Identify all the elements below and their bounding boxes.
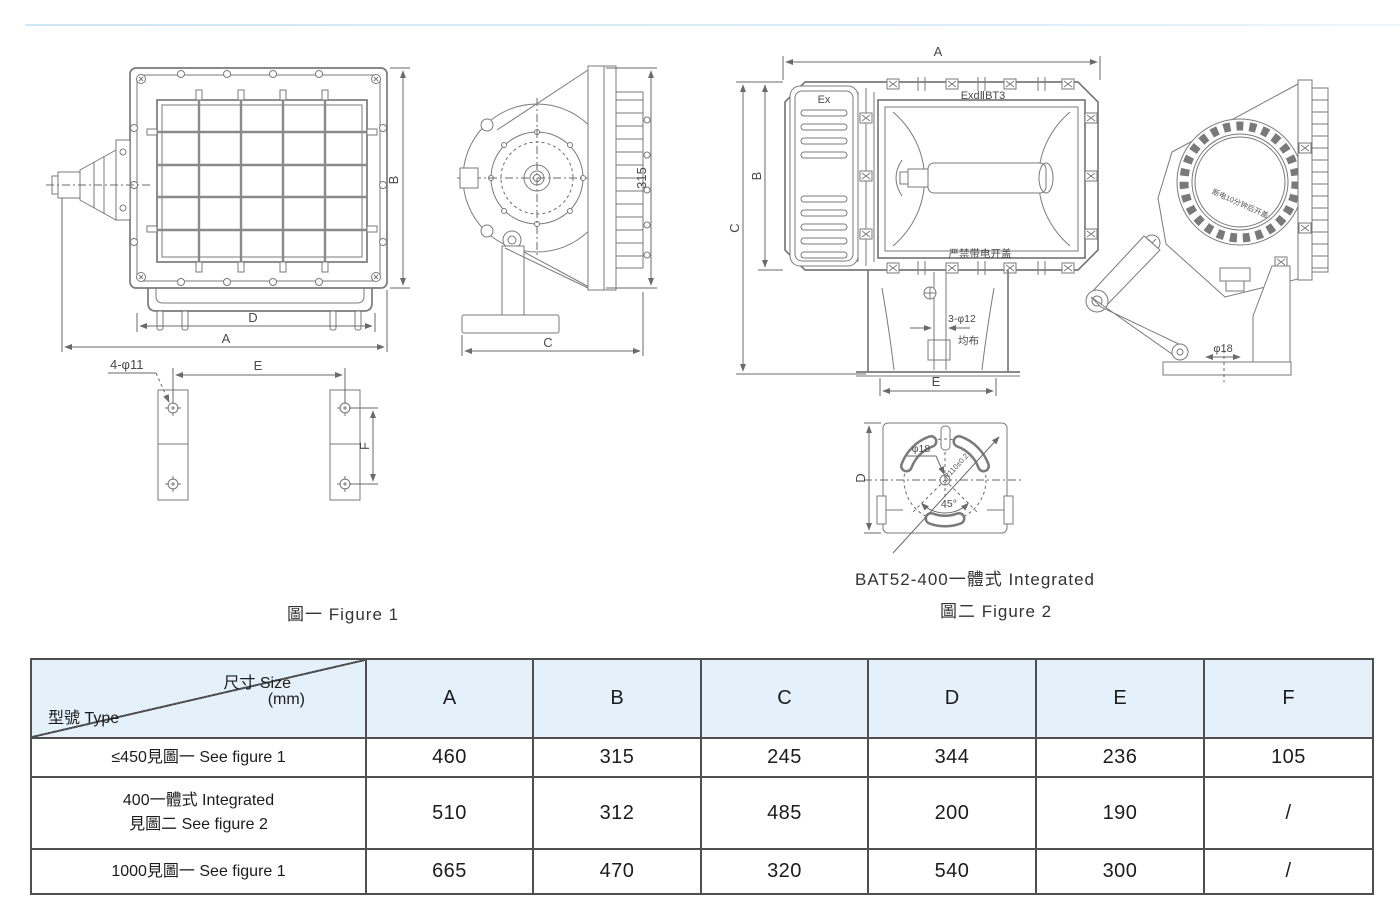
column-header-f: F — [1204, 659, 1373, 738]
fig2-base-dim-d-label: D — [853, 473, 868, 482]
type-cell-line1: 1000見圖一 See figure 1 — [32, 860, 365, 884]
value-cell: 190 — [1036, 777, 1204, 849]
fig1-dim-b-label: B — [386, 176, 401, 185]
figure1-caption: 圖一 Figure 1 — [287, 600, 399, 625]
value-cell: / — [1204, 777, 1373, 849]
value-cell: 470 — [533, 849, 701, 894]
value-cell: 200 — [868, 777, 1036, 849]
fig2-ex-mark: Ex — [818, 94, 831, 106]
fig1-dim-c-label: C — [543, 335, 552, 350]
value-cell: 320 — [701, 849, 868, 894]
value-cell: 665 — [366, 849, 533, 894]
figure1-side-view: 315 C — [457, 66, 657, 356]
value-cell: 245 — [701, 738, 868, 777]
fig2-base-angle-label: 45° — [941, 498, 957, 510]
fig2-warning-text: 严禁带电开盖 — [949, 247, 1012, 260]
fig2-bolt-holes-label: 3-φ12 — [948, 313, 976, 325]
dimension-table: 尺寸 Size (mm) 型號 Type A B C D E F ≤450見圖一… — [30, 658, 1374, 895]
table-header-row: 尺寸 Size (mm) 型號 Type A B C D E F — [31, 659, 1373, 738]
value-cell: 344 — [868, 738, 1036, 777]
figure2-title: BAT52-400一體式 Integrated — [855, 565, 1095, 590]
table-row: ≤450見圖一 See figure 1 460 315 245 344 236… — [31, 738, 1373, 777]
value-cell: 236 — [1036, 738, 1204, 777]
fig1-dim-315-label: 315 — [634, 167, 649, 189]
size-label: 尺寸 Size — [223, 669, 291, 693]
value-cell: 540 — [868, 849, 1036, 894]
type-cell-line2: 見圖二 See figure 2 — [32, 813, 365, 837]
figure1-mounting-bracket-detail: E 4-φ11 F — [108, 357, 378, 500]
column-header-a: A — [366, 659, 533, 738]
value-cell: 105 — [1204, 738, 1373, 777]
column-header-c: C — [701, 659, 868, 738]
fig1-dim-f-label: F — [357, 442, 372, 450]
type-cell: ≤450見圖一 See figure 1 — [31, 738, 366, 777]
column-header-d: D — [868, 659, 1036, 738]
table-row: 400一體式 Integrated 見圖二 See figure 2 510 3… — [31, 777, 1373, 849]
fig2-base-phi18-label: φ18 — [912, 443, 931, 455]
fig1-dim-d-label: D — [248, 310, 257, 325]
value-cell: 300 — [1036, 849, 1204, 894]
technical-drawings: B D A E 4-φ11 F — [0, 0, 1400, 655]
fig2-bolt-holes-note: 均布 — [958, 335, 979, 347]
figure2-side-view: 断电10分钟后开盖 φ18 — [1086, 80, 1328, 382]
fig1-dim-e-label: E — [254, 358, 263, 373]
type-cell: 1000見圖一 See figure 1 — [31, 849, 366, 894]
figure2-front-view: Ex ExdⅡBT3 严禁带电开盖 — [727, 44, 1100, 396]
type-cell-line1: 400一體式 Integrated — [32, 789, 365, 813]
type-label: 型號 Type — [48, 704, 119, 728]
size-unit-label: (mm) — [268, 691, 305, 709]
table-corner-cell: 尺寸 Size (mm) 型號 Type — [31, 659, 366, 738]
type-cell-line1: ≤450見圖一 See figure 1 — [32, 746, 365, 770]
value-cell: 312 — [533, 777, 701, 849]
value-cell: 315 — [533, 738, 701, 777]
column-header-b: B — [533, 659, 701, 738]
figure2-caption: 圖二 Figure 2 — [940, 597, 1052, 622]
figure1-front-view: B D A — [46, 68, 410, 352]
table-row: 1000見圖一 See figure 1 665 470 320 540 300… — [31, 849, 1373, 894]
fig2-dim-e-label: E — [932, 374, 941, 389]
value-cell: 485 — [701, 777, 868, 849]
value-cell: / — [1204, 849, 1373, 894]
fig2-dim-c-label: C — [727, 223, 742, 232]
type-cell: 400一體式 Integrated 見圖二 See figure 2 — [31, 777, 366, 849]
value-cell: 510 — [366, 777, 533, 849]
figure2-base-plate-detail: D φ18 45° R110±0.2 — [853, 423, 1024, 553]
fig2-dim-a-label: A — [934, 44, 943, 59]
value-cell: 460 — [366, 738, 533, 777]
fig1-dim-a-label: A — [222, 331, 231, 346]
fig2-rating-mark: ExdⅡBT3 — [961, 90, 1006, 102]
fig1-bolt-holes-label: 4-φ11 — [110, 357, 143, 372]
datasheet-page: B D A E 4-φ11 F — [0, 0, 1400, 913]
dimension-table-wrapper: 尺寸 Size (mm) 型號 Type A B C D E F ≤450見圖一… — [30, 658, 1374, 895]
column-header-e: E — [1036, 659, 1204, 738]
fig2-side-phi18-label: φ18 — [1213, 343, 1232, 355]
fig2-dim-b-label: B — [749, 172, 764, 181]
